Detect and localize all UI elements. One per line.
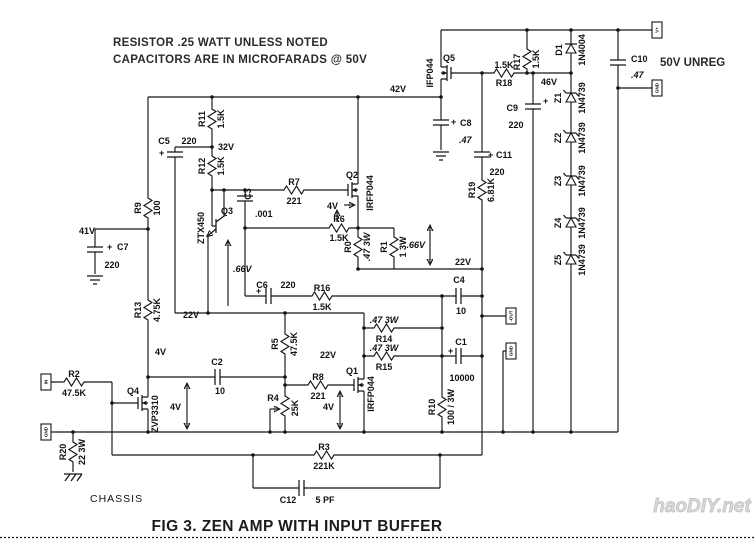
- resistor-r17: R17 1.5K: [512, 45, 541, 73]
- schematic-page: RESISTOR .25 WATT UNLESS NOTED CAPACITOR…: [0, 0, 756, 539]
- chassis-ground: CHASSIS: [64, 474, 143, 505]
- r13-ref-label: R13: [133, 302, 143, 319]
- q1-part-label: IRFP044: [366, 376, 376, 412]
- zen-amp-schematic: RESISTOR .25 WATT UNLESS NOTED CAPACITOR…: [0, 0, 756, 539]
- watermark: haoDIY.net: [653, 496, 751, 517]
- voltage-066v-r1-label: .66V: [406, 240, 426, 250]
- c5-ref-label: C5: [158, 136, 170, 146]
- r19-value-label: 6.81K: [486, 177, 496, 202]
- r3-value-label: 221K: [313, 461, 335, 471]
- r14-value-label: .47 3W: [370, 315, 400, 325]
- potentiometer-r4: R4 25K: [267, 392, 300, 432]
- c12-value-label: 5 PF: [315, 495, 335, 505]
- c8-value-label: .47: [459, 135, 473, 145]
- r12-ref-label: R12: [197, 158, 207, 175]
- zener-z3: Z3 1N4739: [553, 165, 587, 197]
- c3-value-label: .001: [255, 209, 273, 219]
- terminal-output-gnd: GND: [506, 343, 516, 359]
- c12-ref-label: C12: [280, 495, 297, 505]
- capacitor-c1: C1 + 10000: [448, 337, 475, 383]
- z5-ref-label: Z5: [553, 255, 563, 266]
- terminal-supply-pos-label: V+: [655, 27, 660, 33]
- c6-value-label: 220: [280, 280, 295, 290]
- c1-value-label: 10000: [449, 373, 474, 383]
- z3-ref-label: Z3: [553, 176, 563, 187]
- z5-part-label: 1N4739: [577, 244, 587, 276]
- r6-ref-label: R6: [333, 214, 345, 224]
- note-resistors: RESISTOR .25 WATT UNLESS NOTED: [113, 37, 328, 49]
- capacitor-c3: C3 .001: [237, 188, 273, 219]
- voltage-4v-q1-label: 4V: [323, 402, 334, 412]
- q5-part-label: IFP044: [425, 58, 435, 87]
- resistor-r9: R9 100: [133, 194, 162, 222]
- r11-value-label: 1.5K: [216, 109, 226, 129]
- c9-ref-label: C9: [506, 103, 518, 113]
- r16-ref-label: R16: [314, 283, 331, 293]
- r19-ref-label: R19: [467, 182, 477, 199]
- c11-ref-label: C11: [496, 150, 512, 160]
- r5-ref-label: R5: [270, 338, 280, 350]
- r0-value-label: .47 3W: [362, 231, 372, 261]
- transistor-q3: Q3 ZTX450: [196, 206, 233, 244]
- z1-ref-label: Z1: [553, 93, 563, 104]
- r12-value-label: 1.5K: [216, 156, 226, 176]
- voltage-46v: 46V: [541, 77, 557, 87]
- c3-ref-label: C3: [243, 188, 253, 200]
- capacitor-c7: 41V + C7 220: [79, 226, 129, 284]
- voltage-4v-src: 4V: [155, 347, 166, 357]
- resistor-r14: .47 3W R14: [370, 315, 400, 344]
- resistor-r7: R7 221: [280, 177, 308, 206]
- r9-value-label: 100: [152, 200, 162, 215]
- c11-plus: +: [488, 150, 493, 160]
- z1-part-label: 1N4739: [577, 82, 587, 114]
- c4-value-label: 10: [456, 306, 466, 316]
- capacitor-c6: C6 220 +: [256, 280, 296, 304]
- c10-ref-label: C10: [631, 54, 648, 64]
- r20-ref-label: R20: [58, 444, 68, 461]
- terminal-output: -OUT: [506, 308, 516, 324]
- terminal-output-gnd-label: GND: [509, 345, 514, 356]
- capacitor-c10: C10 .47: [610, 54, 648, 80]
- r15-value-label: .47 3W: [370, 343, 400, 353]
- supply-label: 50V UNREG: [660, 57, 725, 69]
- z4-ref-label: Z4: [553, 218, 563, 229]
- resistor-r8: R8 221: [304, 372, 332, 401]
- q4-ref-label: Q4: [127, 386, 139, 396]
- mosfet-q1: Q1 IRFP044: [346, 366, 376, 412]
- c4-ref-label: C4: [453, 275, 465, 285]
- c2-ref-label: C2: [211, 357, 223, 367]
- voltage-4v-q2-label: 4V: [327, 201, 338, 211]
- terminal-supply-gnd-label: GND: [655, 82, 660, 93]
- voltage-41v: 41V: [79, 226, 95, 236]
- terminal-input-gnd: GND: [41, 424, 51, 440]
- r5-value-label: 47.5K: [289, 331, 299, 356]
- resistor-r20: R20 22 3W: [58, 438, 87, 466]
- resistor-r5: R5 47.5K: [270, 330, 299, 358]
- terminal-input: IN: [41, 374, 51, 390]
- voltage-22v-mid: 22V: [320, 350, 336, 360]
- voltage-22v-out: 22V: [455, 257, 471, 267]
- q2-ref-label: Q2: [346, 170, 358, 180]
- capacitor-c12: C12 5 PF: [280, 480, 335, 505]
- c1-ref-label: C1: [455, 337, 467, 347]
- resistor-r10: R10 100 / 3W: [427, 388, 456, 425]
- resistor-r19: R19 6.81K: [467, 176, 496, 204]
- c6-plus: +: [256, 286, 261, 296]
- chassis-label: CHASSIS: [90, 493, 143, 505]
- resistor-r15: .47 3W R15: [370, 343, 400, 372]
- capacitor-c9: C9 220 +: [506, 96, 548, 130]
- c1-plus: +: [448, 346, 453, 356]
- voltage-4v-q4-label: 4V: [170, 402, 181, 412]
- voltage-4v-q1: 4V: [323, 392, 340, 428]
- resistor-r1: R1 1 3W: [379, 233, 408, 261]
- r8-value-label: 221: [310, 391, 325, 401]
- c7-ref-label: C7: [117, 242, 129, 252]
- r16-value-label: 1.5K: [312, 302, 332, 312]
- terminal-supply-gnd: GND: [652, 80, 662, 96]
- c11-value-label: 220: [489, 167, 504, 177]
- voltage-4v-q4: 4V: [170, 384, 187, 428]
- resistor-r11: R11 1.5K: [197, 105, 226, 133]
- z4-part-label: 1N4739: [577, 207, 587, 239]
- q5-ref-label: Q5: [443, 53, 455, 63]
- resistor-r13: R13 4.75K: [133, 296, 162, 324]
- terminal-input-gnd-label: GND: [44, 426, 49, 437]
- r7-value-label: 221: [286, 196, 301, 206]
- resistor-r6: R6 1.5K: [325, 214, 353, 243]
- r20-value-label: 22 3W: [77, 438, 87, 465]
- q1-ref-label: Q1: [346, 366, 358, 376]
- capacitor-c8: + C8 .47: [433, 117, 473, 160]
- z2-ref-label: Z2: [553, 133, 563, 144]
- r3-ref-label: R3: [318, 442, 330, 452]
- c9-plus: +: [543, 96, 548, 106]
- r18-value-label: 1.5K: [494, 60, 514, 70]
- c7-value-label: 220: [104, 260, 119, 270]
- r4-ref-label: R4: [267, 393, 279, 403]
- r18-ref-label: R18: [496, 78, 513, 88]
- c5-value-label: 220: [181, 136, 196, 146]
- voltage-32v: 32V: [218, 142, 234, 152]
- z3-part-label: 1N4739: [577, 165, 587, 197]
- r11-ref-label: R11: [197, 111, 207, 127]
- voltage-066v-r1: .66V: [406, 226, 430, 264]
- zener-z4: Z4 1N4739: [553, 207, 587, 239]
- r9-ref-label: R9: [133, 202, 143, 214]
- r10-ref-label: R10: [427, 399, 437, 416]
- r4-value-label: 25K: [290, 399, 300, 416]
- resistor-r12: R12 1.5K: [197, 152, 226, 180]
- mosfet-q4: Q4 ZVP3310: [127, 386, 160, 433]
- r13-value-label: 4.75K: [152, 297, 162, 322]
- zener-z1: Z1 1N4739: [553, 82, 587, 114]
- r8-ref-label: R8: [312, 372, 324, 382]
- c2-value-label: 10: [215, 386, 225, 396]
- r0-ref-label: R0: [343, 241, 353, 253]
- c7-plus: +: [107, 242, 112, 252]
- c10-value-label: .47: [631, 70, 645, 80]
- r2-ref-label: R2: [68, 369, 80, 379]
- capacitor-c11: + C11 220: [474, 150, 512, 177]
- voltage-066v-q3-label: .66V: [233, 264, 253, 274]
- c5-plus: +: [159, 148, 164, 158]
- note-capacitors: CAPACITORS ARE IN MICROFARADS @ 50V: [113, 54, 367, 66]
- terminal-input-label: IN: [44, 379, 49, 384]
- d1-ref-label: D1: [554, 44, 564, 56]
- r15-ref-label: R15: [376, 362, 393, 372]
- r7-ref-label: R7: [288, 177, 300, 187]
- voltage-22v-left: 22V: [183, 310, 199, 320]
- zener-z2: Z2 1N4739: [553, 122, 587, 154]
- terminal-supply-pos: V+: [652, 22, 662, 38]
- c8-plus: +: [451, 117, 456, 127]
- resistor-r2: R2 47.5K: [60, 369, 88, 398]
- d1-part-label: 1N4004: [577, 34, 587, 66]
- resistor-r16: R16 1.5K: [308, 283, 336, 312]
- c9-value-label: 220: [508, 120, 523, 130]
- r17-value-label: 1.5K: [531, 49, 541, 69]
- voltage-42v: 42V: [390, 84, 406, 94]
- q3-ref-label: Q3: [221, 206, 233, 216]
- z2-part-label: 1N4739: [577, 122, 587, 154]
- r10-value-label: 100 / 3W: [446, 388, 456, 425]
- r2-value-label: 47.5K: [62, 388, 87, 398]
- r1-ref-label: R1: [379, 241, 389, 253]
- c8-ref-label: C8: [460, 118, 472, 128]
- figure-caption: FIG 3. ZEN AMP WITH INPUT BUFFER: [152, 518, 443, 535]
- terminal-output-label: -OUT: [509, 310, 514, 321]
- q3-part-label: ZTX450: [196, 212, 206, 244]
- zener-z5: Z5 1N4739: [553, 244, 587, 276]
- q2-part-label: IRFP044: [365, 175, 375, 211]
- resistor-r3: R3 221K: [310, 442, 338, 471]
- q4-part-label: ZVP3310: [150, 395, 160, 433]
